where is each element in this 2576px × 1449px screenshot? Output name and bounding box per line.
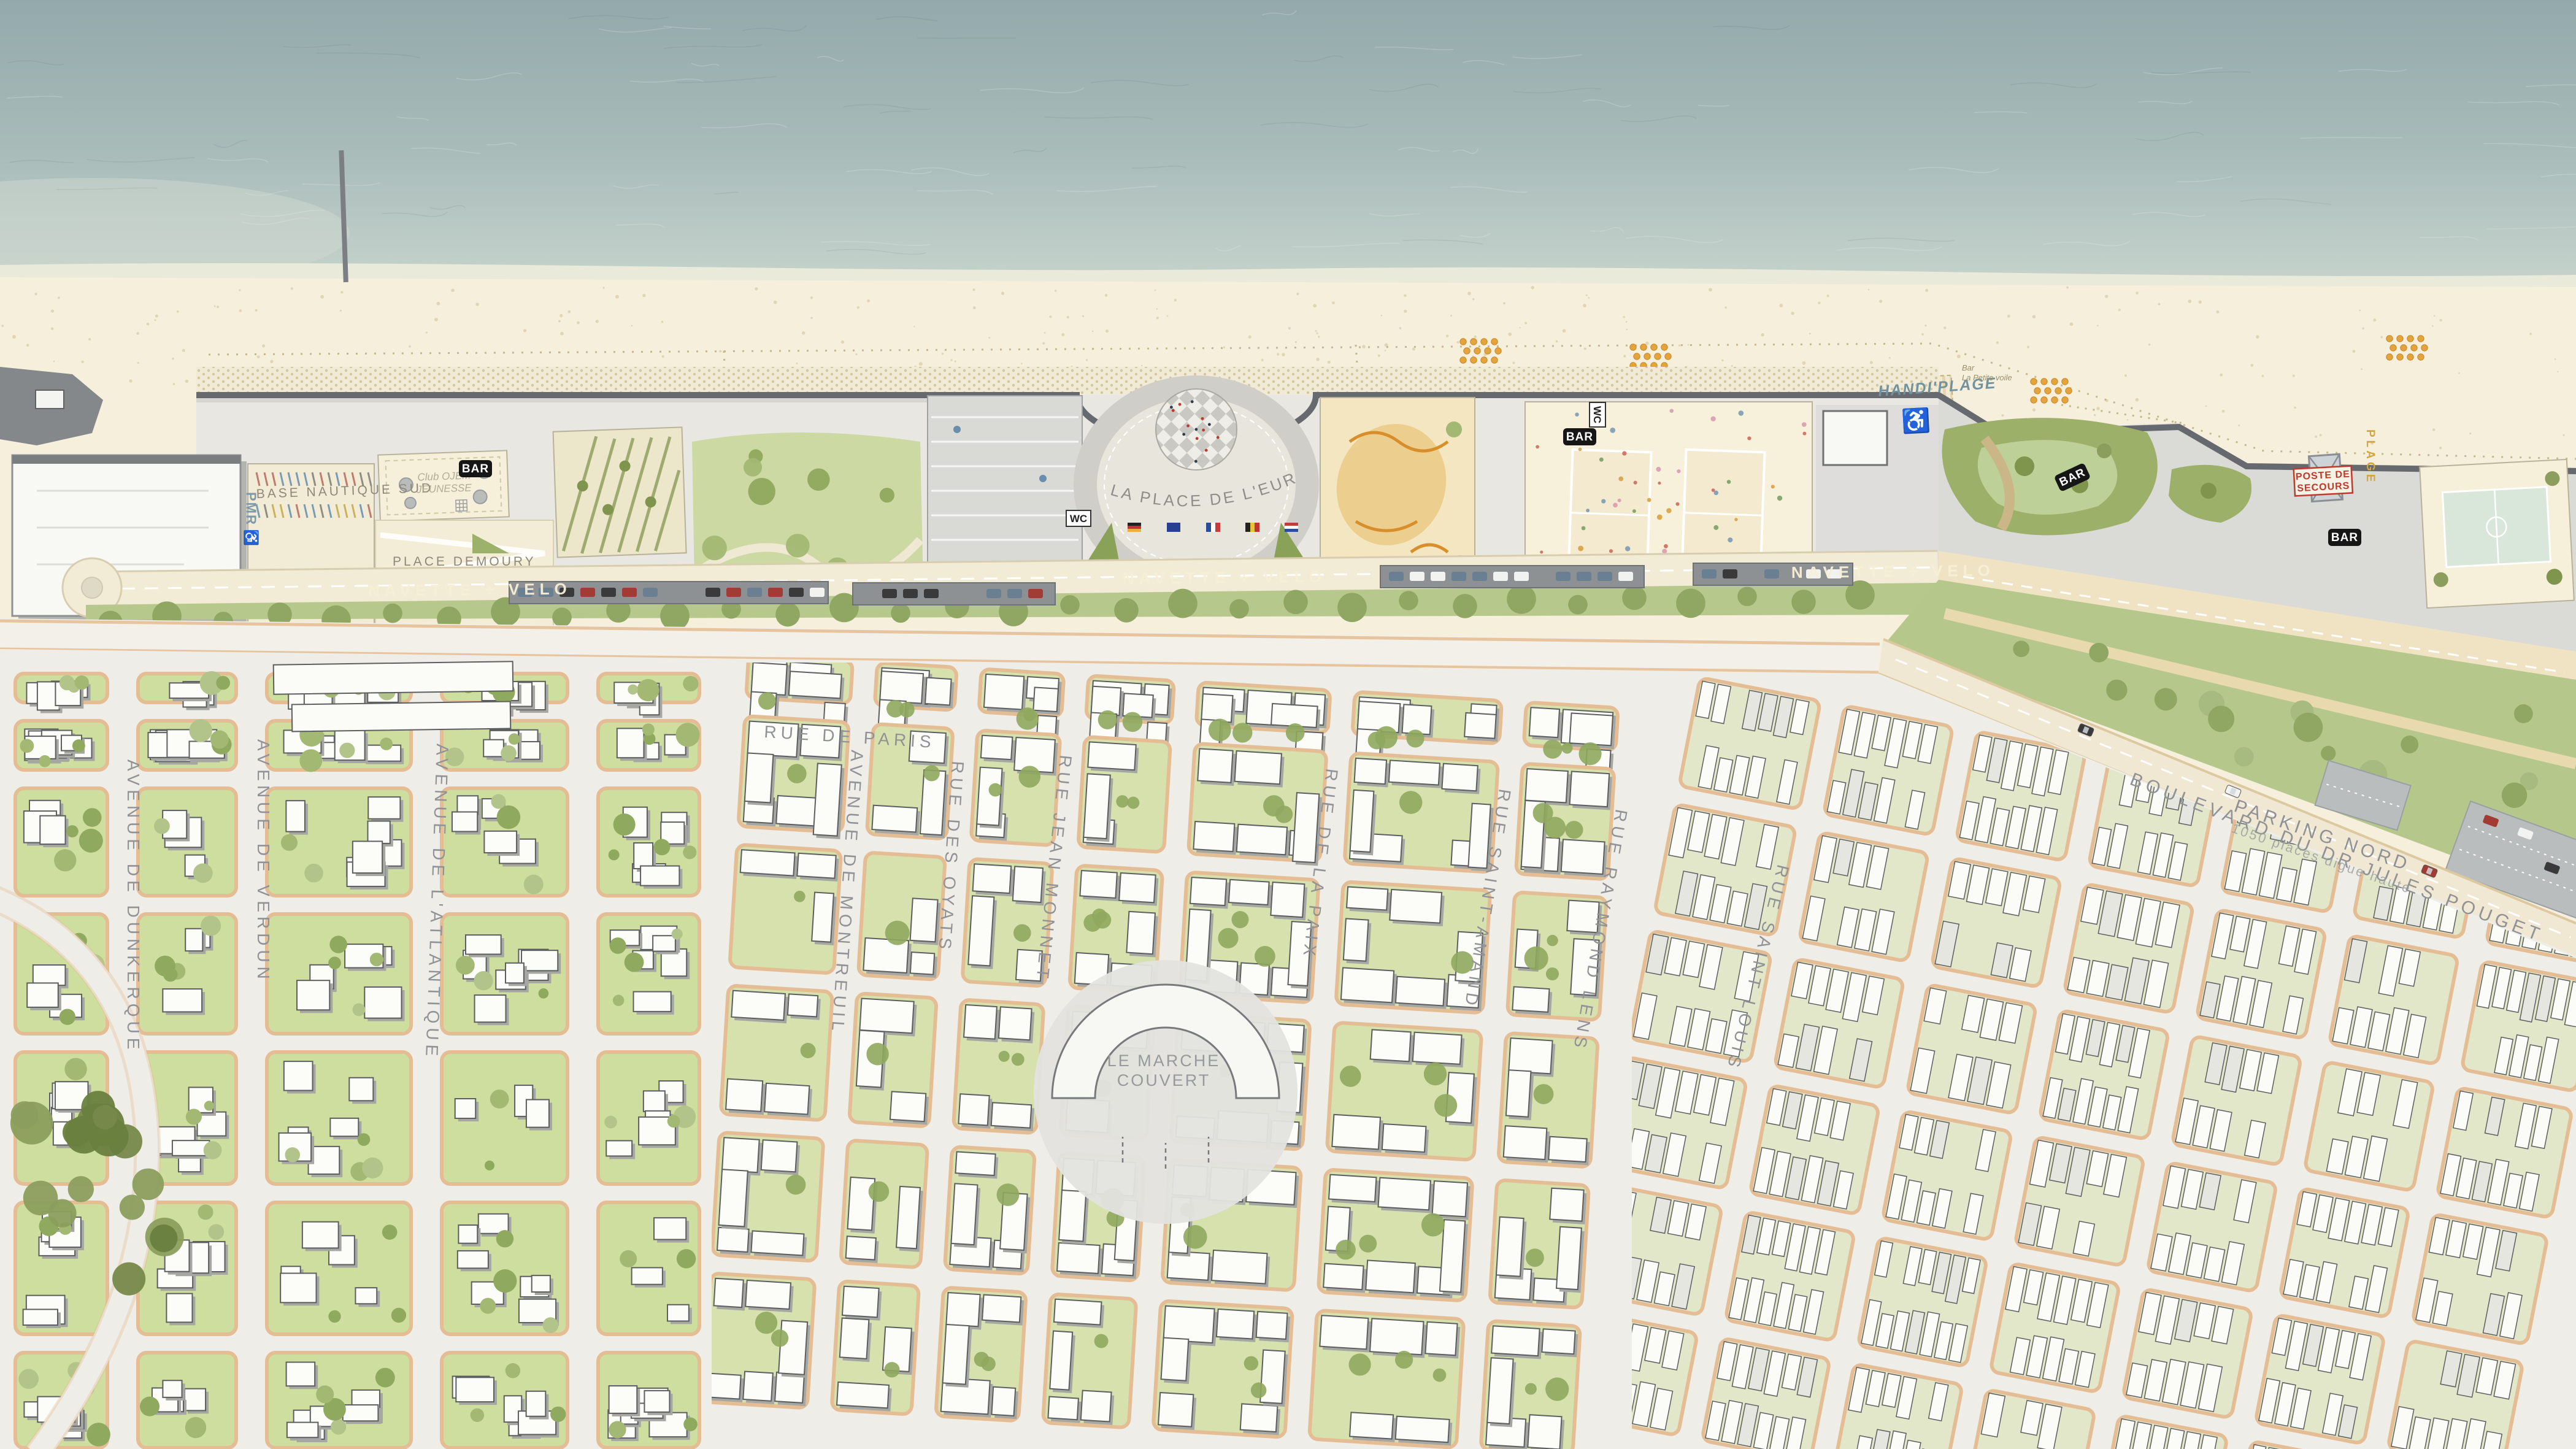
sand-speckle — [154, 319, 156, 321]
sand-speckle — [2555, 358, 2556, 360]
parked-car — [768, 588, 783, 597]
confetti-dot — [1777, 496, 1782, 501]
building — [745, 1280, 791, 1309]
street-tree — [891, 604, 910, 623]
tree — [744, 458, 762, 477]
sand-speckle — [719, 350, 721, 353]
building — [1083, 774, 1110, 839]
building — [367, 821, 390, 843]
building — [840, 1318, 869, 1359]
building — [297, 980, 329, 1010]
park-tree — [2294, 713, 2323, 742]
plaza-dot — [1196, 437, 1199, 440]
sand-speckle — [988, 337, 990, 339]
sand-speckle — [1802, 361, 1806, 365]
bar-box-1: BAR — [459, 460, 492, 477]
building — [284, 1061, 313, 1090]
sand-speckle — [596, 320, 599, 323]
sand-speckle — [2238, 425, 2240, 426]
building — [349, 1078, 373, 1101]
building — [653, 936, 675, 951]
sand-speckle — [1248, 336, 1251, 339]
tree — [60, 675, 75, 691]
confetti-dot — [1657, 515, 1663, 520]
building — [859, 999, 913, 1034]
building — [1504, 1126, 1547, 1159]
tree — [509, 733, 520, 745]
building — [506, 963, 524, 983]
street-tree — [1114, 598, 1139, 623]
sand-speckle — [270, 360, 273, 363]
forest-tree — [150, 1224, 177, 1252]
sand-speckle — [2359, 310, 2361, 312]
building — [286, 801, 305, 831]
parked-car — [1451, 572, 1466, 581]
sand-speckle — [58, 297, 60, 299]
tree — [209, 1224, 225, 1240]
building — [1358, 701, 1401, 732]
sand-speckle — [1318, 336, 1320, 337]
building — [1088, 742, 1136, 770]
building — [1240, 1404, 1278, 1432]
beach-umbrella — [1651, 344, 1657, 350]
park-tree — [2401, 736, 2418, 753]
building — [458, 1225, 477, 1243]
building — [634, 992, 671, 1012]
building — [644, 1091, 665, 1112]
parked-car — [1493, 572, 1508, 581]
building — [484, 831, 517, 853]
plage-label: PLAGE — [2364, 429, 2377, 485]
building — [958, 1094, 989, 1125]
sand-speckle — [1381, 315, 1383, 317]
confetti-dot — [1771, 485, 1775, 488]
tree — [683, 676, 698, 691]
sand-speckle — [2352, 350, 2355, 353]
tree — [496, 1230, 513, 1247]
beach-umbrella — [1460, 357, 1466, 363]
sand-speckle — [774, 301, 777, 304]
building — [1126, 912, 1155, 954]
wc-box-1: WC — [1066, 510, 1091, 526]
map-canvas: AVENUE DE DUNKERQUE AVENUE DE VERDUN AVE… — [0, 0, 2576, 1449]
building — [1235, 751, 1282, 784]
sand-speckle — [1399, 327, 1402, 329]
tree — [204, 1101, 214, 1110]
sand-speckle — [1092, 331, 1094, 332]
tree — [620, 1250, 637, 1267]
tree — [281, 834, 298, 851]
building — [302, 1222, 339, 1248]
confetti-dot — [1601, 499, 1605, 503]
sand-speckle — [1296, 293, 1299, 295]
confetti-dot — [1658, 482, 1661, 485]
confetti-dot — [1540, 550, 1543, 553]
sand-speckle — [1724, 306, 1727, 309]
sand-speckle — [2261, 375, 2264, 377]
navette-label-1: NAVETTE + VELO — [368, 580, 572, 600]
tree — [18, 1369, 39, 1389]
building — [1491, 1326, 1539, 1356]
beach-umbrella — [1640, 344, 1647, 350]
building — [526, 1391, 546, 1416]
plaza-dot — [1208, 423, 1211, 426]
tree — [491, 794, 506, 809]
beach-umbrella — [1491, 357, 1498, 363]
tree — [54, 849, 76, 871]
svg-text:BAR: BAR — [462, 463, 489, 475]
sand-speckle — [855, 353, 857, 355]
sand-speckle — [1925, 289, 1928, 292]
street-tree — [1737, 586, 1757, 606]
sand-speckle — [1378, 355, 1380, 357]
sand-speckle — [2188, 299, 2192, 303]
confetti-dot — [1669, 409, 1673, 412]
tree — [380, 737, 393, 750]
sand-speckle — [291, 287, 293, 290]
building — [964, 1005, 997, 1039]
beach-umbrella — [2390, 345, 2396, 351]
building — [1432, 1181, 1467, 1216]
building — [1366, 1260, 1415, 1293]
sand-speckle — [1944, 326, 1946, 329]
building — [532, 1275, 550, 1292]
sand-speckle — [1957, 355, 1961, 358]
sea — [0, 0, 2576, 299]
beach-umbrella — [1460, 339, 1466, 345]
building — [951, 1183, 977, 1245]
tree — [331, 1419, 346, 1434]
confetti-dot — [1586, 509, 1590, 512]
sand-speckle — [1061, 333, 1064, 336]
sand-speckle — [173, 383, 175, 385]
street-tree — [775, 602, 800, 627]
building — [1256, 1312, 1288, 1339]
beach-bar-note-2: La Petite voile — [1962, 373, 2012, 382]
tree — [216, 676, 230, 690]
sand-speckle — [2222, 410, 2225, 413]
plaza-dot — [1202, 429, 1205, 432]
tree — [140, 1397, 160, 1416]
parked-car — [810, 588, 825, 597]
building — [1550, 1188, 1583, 1221]
sand-speckle — [1709, 288, 1712, 291]
building — [526, 1099, 549, 1127]
sand-speckle — [919, 362, 923, 366]
beach-umbrella — [2051, 397, 2058, 403]
beach-umbrella — [1491, 339, 1498, 345]
tree — [79, 829, 103, 853]
svg-text:BAR: BAR — [2331, 531, 2358, 544]
building — [880, 671, 923, 704]
sand-speckle — [147, 323, 150, 326]
building — [751, 1231, 804, 1255]
building — [483, 740, 504, 757]
beach-umbrella — [1485, 348, 1491, 354]
flag-eu — [1167, 523, 1180, 532]
sand-speckle — [955, 360, 956, 362]
tree — [358, 1133, 371, 1146]
tree — [654, 839, 671, 856]
building — [606, 1140, 632, 1156]
confetti-dot — [1747, 436, 1751, 440]
parked-car — [789, 588, 804, 597]
building — [1059, 1190, 1086, 1241]
parked-car — [601, 588, 616, 597]
confetti-dot — [1712, 488, 1715, 492]
sand-speckle — [2458, 372, 2460, 374]
sand-speckle — [1586, 294, 1588, 296]
building — [1464, 713, 1496, 739]
building — [1529, 707, 1559, 737]
wc-box-2: WC — [1590, 402, 1605, 427]
building — [797, 853, 836, 878]
tree — [628, 685, 638, 695]
sand-speckle — [239, 309, 242, 312]
tree — [456, 956, 475, 975]
sand-speckle — [1584, 348, 1586, 350]
street-tree — [1507, 585, 1536, 614]
building — [982, 1295, 1021, 1323]
sand-speckle — [1021, 363, 1023, 364]
tree — [748, 478, 775, 505]
sand-speckle — [340, 291, 343, 293]
sand-speckle — [2217, 310, 2220, 313]
sand-speckle — [2294, 407, 2296, 409]
parked-car — [1577, 572, 1591, 581]
sand-speckle — [1626, 321, 1628, 323]
beach-umbrella — [2411, 345, 2417, 351]
building — [846, 1236, 876, 1259]
sand-speckle — [1042, 342, 1045, 345]
building — [654, 1218, 686, 1239]
sand-speckle — [217, 306, 219, 308]
sand-speckle — [1870, 361, 1873, 364]
tree — [702, 536, 727, 560]
sand-speckle — [155, 315, 158, 318]
building — [973, 864, 1012, 893]
tree — [613, 994, 624, 1005]
marche-label-2: COUVERT — [1117, 1071, 1211, 1090]
sand-speckle — [1563, 329, 1566, 333]
confetti-dot — [1625, 546, 1630, 551]
building — [1201, 694, 1232, 722]
tree — [609, 849, 620, 860]
building — [910, 898, 938, 942]
dune-park-west — [1942, 418, 2158, 535]
tree — [370, 953, 383, 966]
platform-orchard — [553, 427, 686, 557]
building — [355, 1288, 377, 1304]
building — [1350, 790, 1374, 852]
sand-speckle — [558, 320, 561, 323]
sand-speckle — [2094, 414, 2096, 417]
sand-speckle — [409, 345, 411, 348]
sand-speckle — [2220, 374, 2223, 377]
sand-speckle — [1678, 344, 1681, 347]
building — [1158, 1393, 1193, 1427]
sand-speckle — [2380, 336, 2383, 339]
tree — [880, 488, 894, 502]
sand-speckle — [1277, 353, 1279, 355]
building — [1212, 1250, 1267, 1284]
beach-umbrella — [2407, 354, 2413, 360]
plaza-dot — [1186, 425, 1190, 428]
tree — [480, 1298, 496, 1314]
building — [287, 1423, 318, 1438]
building — [943, 1324, 969, 1385]
sand-speckle — [631, 325, 633, 327]
tree — [625, 953, 644, 972]
building — [1320, 1315, 1368, 1349]
building — [1509, 1038, 1552, 1074]
building — [1217, 1309, 1254, 1339]
beach-umbrella — [2045, 388, 2051, 394]
sand-speckle — [841, 340, 844, 344]
beach-umbrella — [2418, 354, 2424, 360]
tree — [550, 1407, 566, 1422]
tree — [87, 1423, 110, 1447]
sand-speckle — [1223, 347, 1225, 348]
sand-speckle — [2250, 364, 2253, 366]
sand-speckle — [1721, 359, 1723, 361]
plaza-dot — [1170, 405, 1173, 409]
parked-car — [622, 588, 637, 597]
beach-umbrella — [2066, 388, 2072, 394]
tree — [193, 863, 213, 883]
tree — [20, 739, 34, 753]
sand-speckle — [1105, 294, 1108, 297]
beach-umbrella — [1644, 353, 1650, 359]
sand-speckle — [434, 318, 438, 321]
sand-speckle — [1472, 298, 1474, 300]
building — [1163, 1306, 1214, 1343]
parked-car — [1389, 572, 1404, 581]
sand-speckle — [796, 363, 798, 364]
sand-speckle — [2439, 319, 2442, 321]
sand-speckle — [972, 288, 975, 291]
sand-speckle — [577, 321, 580, 325]
tree — [198, 1204, 213, 1220]
sand-speckle — [136, 332, 139, 335]
sand-speckle — [2434, 315, 2436, 317]
flag-belgium — [1245, 523, 1259, 532]
building — [640, 866, 679, 886]
building — [1341, 967, 1394, 1002]
building — [752, 663, 787, 695]
building — [977, 767, 1002, 826]
sand-speckle — [1156, 317, 1159, 319]
confetti-dot — [1610, 428, 1615, 433]
sand-speckle — [88, 338, 91, 340]
sand-speckle — [615, 295, 619, 299]
plaza-dot — [1182, 433, 1185, 436]
beach-umbrella — [2062, 379, 2068, 385]
tree — [155, 956, 175, 977]
sand-speckle — [867, 299, 870, 302]
park-tree — [2013, 640, 2029, 657]
sand-speckle — [950, 359, 953, 361]
sand-speckle — [340, 310, 342, 312]
sand-speckle — [1921, 333, 1924, 336]
building — [1271, 882, 1304, 917]
building — [634, 843, 653, 869]
sand-speckle — [129, 379, 132, 382]
sand-speckle — [2315, 436, 2317, 438]
building — [740, 850, 795, 875]
building — [1528, 1415, 1561, 1449]
beach-umbrella — [2051, 379, 2058, 385]
sand-speckle — [2469, 432, 2471, 434]
beach-umbrella — [1471, 339, 1477, 345]
building — [991, 1102, 1032, 1128]
sand-speckle — [523, 329, 526, 332]
confetti-dot — [1647, 498, 1651, 502]
plaza-dot — [1205, 449, 1208, 452]
sand-speckle — [2158, 303, 2161, 306]
park-tree — [2155, 688, 2177, 710]
tree — [353, 1003, 366, 1016]
sand-speckle — [1626, 329, 1628, 331]
building — [714, 1278, 744, 1307]
building — [946, 1293, 980, 1326]
parked-car — [1410, 572, 1424, 581]
park-tree — [2106, 680, 2127, 701]
sand-speckle — [1519, 327, 1520, 328]
tree — [610, 937, 626, 954]
street-tree — [1399, 591, 1418, 610]
building — [163, 989, 202, 1012]
beach-umbrella — [2418, 336, 2424, 342]
tree — [72, 739, 85, 752]
beach-umbrella — [1655, 353, 1661, 359]
confetti-dot — [1734, 518, 1737, 521]
tree — [304, 864, 323, 883]
sand-speckle — [1404, 310, 1407, 313]
building — [1229, 880, 1269, 905]
sand-speckle — [2118, 309, 2121, 311]
tree — [604, 1116, 617, 1129]
beach-umbrella — [2055, 388, 2061, 394]
street-tree — [1060, 595, 1080, 615]
building — [1329, 1175, 1376, 1202]
tree — [524, 875, 544, 894]
sand-speckle — [2362, 328, 2364, 329]
building — [731, 991, 785, 1020]
parked-car — [706, 588, 720, 597]
building — [764, 1083, 809, 1115]
svg-text:WC: WC — [1591, 406, 1603, 423]
sand-speckle — [1524, 322, 1527, 325]
sand-speckle — [2027, 346, 2029, 348]
sand-speckle — [1879, 299, 1882, 302]
tree — [64, 1058, 87, 1080]
sand-speckle — [567, 310, 571, 313]
parked-car — [1514, 572, 1529, 581]
tree — [786, 534, 810, 558]
tree — [329, 936, 347, 953]
parked-car — [924, 589, 939, 598]
confetti-dot — [1582, 526, 1586, 531]
beach-umbrella — [2041, 397, 2047, 403]
confetti-dot — [1618, 477, 1623, 482]
building — [1080, 871, 1117, 898]
sand-speckle — [1467, 292, 1471, 296]
street-tree — [1283, 590, 1308, 615]
tree — [539, 988, 549, 999]
sand-speckle — [1583, 304, 1586, 307]
confetti-dot — [1713, 525, 1718, 530]
